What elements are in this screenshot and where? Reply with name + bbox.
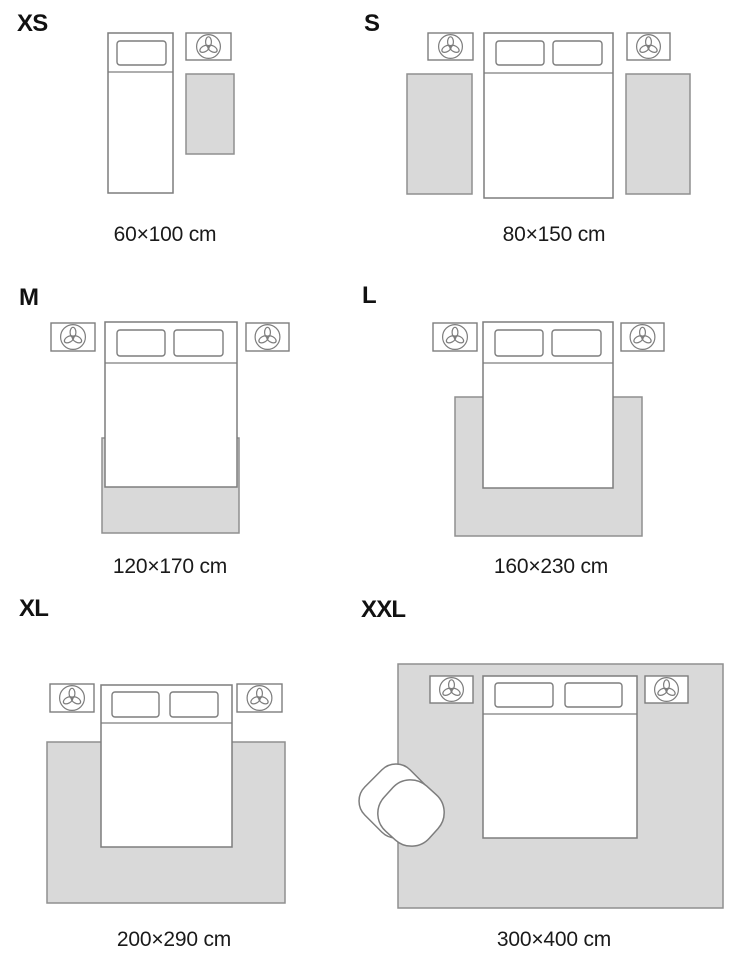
bed	[108, 33, 173, 193]
size-label: XL	[19, 595, 48, 622]
pillow	[117, 330, 165, 356]
pillow	[552, 330, 601, 356]
nightstand	[621, 323, 664, 351]
bed	[483, 322, 613, 488]
pillow	[174, 330, 223, 356]
size-label: M	[19, 284, 38, 311]
pillow	[495, 683, 553, 707]
bed	[105, 322, 237, 487]
size-label: XXL	[361, 596, 405, 623]
nightstand	[237, 684, 282, 712]
pillow	[112, 692, 159, 717]
nightstand	[645, 676, 688, 703]
size-panel-xl: XL200×290 cm	[19, 595, 285, 951]
size-panel-l: L160×230 cm	[362, 282, 664, 578]
bed	[483, 676, 637, 838]
pillow	[553, 41, 602, 65]
size-label: S	[364, 10, 380, 37]
nightstand	[433, 323, 477, 351]
nightstand	[627, 33, 670, 60]
pillow	[117, 41, 166, 65]
bed	[101, 685, 232, 847]
size-caption: 300×400 cm	[497, 928, 611, 951]
nightstand	[50, 684, 94, 712]
bed	[484, 33, 613, 198]
size-label: XS	[17, 10, 48, 37]
nightstand	[428, 33, 473, 60]
size-panel-xxl: XXL300×400 cm	[351, 596, 723, 951]
size-caption: 60×100 cm	[114, 223, 217, 246]
nightstand	[186, 33, 231, 60]
size-label: L	[362, 282, 376, 309]
pillow	[495, 330, 543, 356]
size-panel-m: M120×170 cm	[19, 284, 289, 578]
pillow	[496, 41, 544, 65]
size-caption: 200×290 cm	[117, 928, 231, 951]
pillow	[170, 692, 218, 717]
size-caption: 80×150 cm	[503, 223, 606, 246]
size-panel-xs: XS60×100 cm	[17, 10, 234, 246]
rug	[626, 74, 690, 194]
size-panel-s: S80×150 cm	[364, 10, 690, 246]
nightstand	[51, 323, 95, 351]
rug	[407, 74, 472, 194]
scene-svg: XS60×100 cmS80×150 cmM120×170 cmL160×230…	[0, 0, 740, 960]
rug	[186, 74, 234, 154]
rug-size-guide: XS60×100 cmS80×150 cmM120×170 cmL160×230…	[0, 0, 740, 960]
size-caption: 120×170 cm	[113, 555, 227, 578]
nightstand	[430, 676, 473, 703]
pillow	[565, 683, 622, 707]
nightstand	[246, 323, 289, 351]
size-caption: 160×230 cm	[494, 555, 608, 578]
